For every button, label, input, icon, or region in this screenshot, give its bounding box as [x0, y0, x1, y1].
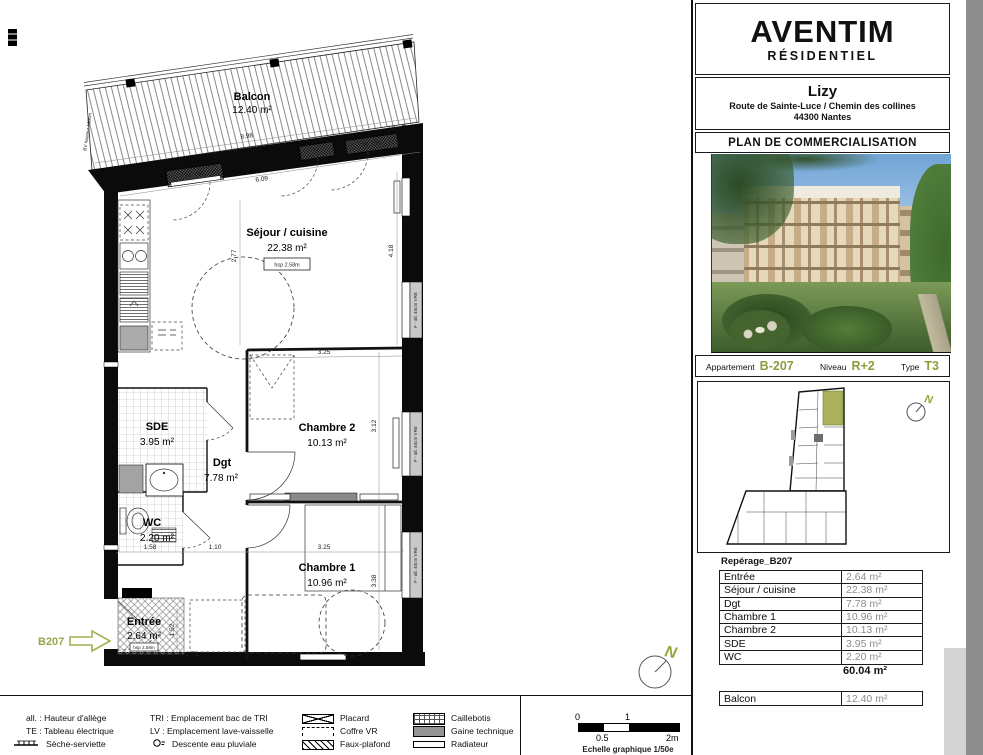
legend-item: Gaine technique [413, 725, 514, 738]
sejour-hsp: hsp 2.58m [274, 263, 300, 269]
building-render-photo [711, 154, 951, 353]
project-address-line1: Route de Sainte-Luce / Chemin des collin… [696, 101, 949, 112]
chambre2-closet [250, 355, 294, 419]
room-area-chambre2: 10.13 m² [307, 438, 347, 449]
table-row: Chambre 210.13 m² [720, 624, 922, 637]
type-value: T3 [924, 359, 939, 373]
false-ceiling-icon [302, 740, 334, 750]
radiator-icon [413, 741, 445, 748]
level-label: Niveau [820, 362, 846, 372]
photo-bush-2 [802, 306, 892, 352]
room-area-entree: 2.64 m² [127, 631, 162, 642]
scale-caption: Echelle graphique 1/50e [560, 745, 696, 754]
room-label-chambre2: Chambre 2 [299, 422, 356, 434]
balcony-row: Balcon 12.40 m² [719, 691, 923, 706]
svg-text:N: N [923, 393, 934, 407]
legend-col-4: Caillebotis Gaine technique Radiateur [413, 712, 514, 751]
legend-item: Placard [302, 712, 390, 725]
window-sejour-right-2: F - all. 40cm VRE [402, 282, 422, 338]
svg-text:F - all. 40cm VRE: F - all. 40cm VRE [413, 547, 418, 583]
apartment-info-row: Appartement B-207 Niveau R+2 Type T3 [695, 355, 950, 377]
table-row: Dgt7.78 m² [720, 598, 922, 611]
apartment-group: Appartement B-207 [706, 359, 794, 373]
apartment-label: Appartement [706, 362, 755, 372]
room-area-dgt: 7.78 m² [204, 473, 239, 484]
duct-icon [413, 726, 445, 737]
legend-vertical-divider [520, 695, 521, 755]
north-letter: N [663, 643, 678, 662]
room-label-sde: SDE [146, 421, 169, 433]
scale-tick-05: 0.5 [596, 733, 609, 743]
type-label: Type [901, 362, 919, 372]
scale-bar [578, 723, 680, 732]
table-row: SDE3.95 m² [720, 637, 922, 650]
keyplan-box: N [697, 381, 950, 553]
rain-drain-icon [152, 738, 166, 752]
towel-radiator-icon [12, 738, 40, 752]
table-row: WC2.20 m² [720, 651, 922, 664]
svg-text:4.18: 4.18 [388, 244, 395, 257]
grating-icon [413, 713, 445, 725]
legend-item: LV : Emplacement lave-vaisselle [150, 725, 274, 738]
legend-separator-line [0, 695, 691, 696]
total-area: 60.04 m² [843, 665, 887, 677]
svg-text:2.77: 2.77 [231, 249, 238, 262]
scale-tick-0: 0 [575, 712, 580, 722]
room-label-wc: WC [143, 517, 161, 529]
brand-name: AVENTIM [696, 16, 949, 47]
svg-text:1.52: 1.52 [169, 623, 176, 636]
legend-item: Radiateur [413, 738, 514, 751]
legend-item: Caillebotis [413, 712, 514, 725]
legend-item: Faux-plafond [302, 738, 390, 751]
watermark-strip-dark [966, 0, 983, 755]
level-group: Niveau R+2 [820, 359, 875, 373]
svg-text:6.09: 6.09 [255, 175, 269, 184]
table-row: Séjour / cuisine22.38 m² [720, 584, 922, 597]
scale-tick-2m: 2m [666, 733, 679, 743]
legend-item: Descente eau pluviale [150, 738, 274, 751]
project-address-line2: 44300 Nantes [696, 112, 949, 123]
legend-col-2: TRI : Emplacement bac de TRI LV : Emplac… [150, 712, 274, 751]
doc-title: PLAN DE COMMERCIALISATION [728, 137, 917, 149]
photo-path [908, 294, 951, 352]
svg-text:2.71: 2.71 [186, 651, 199, 658]
svg-text:3.25: 3.25 [318, 349, 331, 356]
unit-entry-arrow: B207 [38, 631, 110, 651]
main-vertical-divider [691, 0, 693, 755]
legend-item: Sèche-serviette [26, 738, 114, 751]
legend-item: TRI : Emplacement bac de TRI [150, 712, 274, 725]
window-chambre2: F - all. 40cm VRE [393, 412, 422, 476]
room-labels: Séjour / cuisine 22.38 m² hsp 2.58m SDE … [127, 227, 356, 651]
scale-tick-1: 1 [625, 712, 630, 722]
room-area-chambre1: 10.96 m² [307, 578, 347, 589]
svg-text:3.38: 3.38 [371, 574, 378, 587]
legend-col-1: all. : Hauteur d'allège TE : Tableau éle… [26, 712, 114, 751]
keyplan-drawing: N [698, 382, 949, 552]
keyplan-compass: N [907, 393, 935, 421]
legend-item: all. : Hauteur d'allège [26, 712, 114, 725]
kitchen-fixtures [118, 200, 182, 352]
room-area-balcon: 12.40 m² [232, 105, 272, 116]
doc-title-box: PLAN DE COMMERCIALISATION [695, 132, 950, 153]
room-label-balcon: Balcon [234, 91, 271, 103]
floor-plan-drawing: Balcon 12.40 m² BV hauteur 180cm 8.98 EP [0, 0, 691, 695]
areas-table: Entrée2.64 m² Séjour / cuisine22.38 m² D… [719, 570, 923, 665]
svg-text:1.58: 1.58 [144, 544, 157, 551]
room-label-dgt: Dgt [213, 457, 232, 469]
photo-flowers [730, 310, 790, 350]
room-label-sejour: Séjour / cuisine [246, 227, 327, 239]
brand-box: AVENTIM RÉSIDENTIEL [695, 3, 950, 75]
window-sejour-right [394, 178, 410, 216]
room-area-sde: 3.95 m² [140, 437, 175, 448]
room-label-chambre1: Chambre 1 [299, 562, 356, 574]
watermark-strip-light [944, 648, 966, 755]
legend-item: TE : Tableau électrique [26, 725, 114, 738]
project-name: Lizy [696, 84, 949, 101]
keyplan-unit-highlight [823, 391, 843, 425]
closet-icon [302, 714, 334, 724]
window-chambre1: F - all. 40cm VRE [402, 532, 422, 598]
room-area-sejour: 22.38 m² [267, 243, 307, 254]
brand-subtitle: RÉSIDENTIEL [696, 49, 949, 63]
north-compass: N [639, 643, 678, 688]
legend-col-3: Placard Coffre VR Faux-plafond [302, 712, 390, 751]
svg-text:3.25: 3.25 [318, 544, 331, 551]
svg-text:3.12: 3.12 [371, 419, 378, 432]
svg-text:F - all. 40cm VRE: F - all. 40cm VRE [413, 292, 418, 328]
room-area-wc: 2.20 m² [140, 533, 175, 544]
room-label-entree: Entrée [127, 616, 161, 628]
vr-box-icon [302, 727, 334, 736]
table-title: Repérage_B207 [721, 556, 792, 567]
apartment-number: B-207 [760, 359, 794, 373]
table-row: Chambre 110.96 m² [720, 611, 922, 624]
entree-hsp: hsp 2.58m [133, 645, 155, 650]
project-box: Lizy Route de Sainte-Luce / Chemin des c… [695, 77, 950, 130]
svg-text:1.10: 1.10 [209, 544, 222, 551]
plan-de-commercialisation-page: Balcon 12.40 m² BV hauteur 180cm 8.98 EP [0, 0, 983, 755]
table-row: Entrée2.64 m² [720, 571, 922, 584]
level-value: R+2 [851, 359, 874, 373]
sheet-corner-mark [8, 29, 17, 46]
legend-item: Coffre VR [302, 725, 390, 738]
svg-text:F - all. 40cm VRE: F - all. 40cm VRE [413, 426, 418, 462]
unit-tag: B207 [38, 636, 64, 648]
type-group: Type T3 [901, 359, 939, 373]
